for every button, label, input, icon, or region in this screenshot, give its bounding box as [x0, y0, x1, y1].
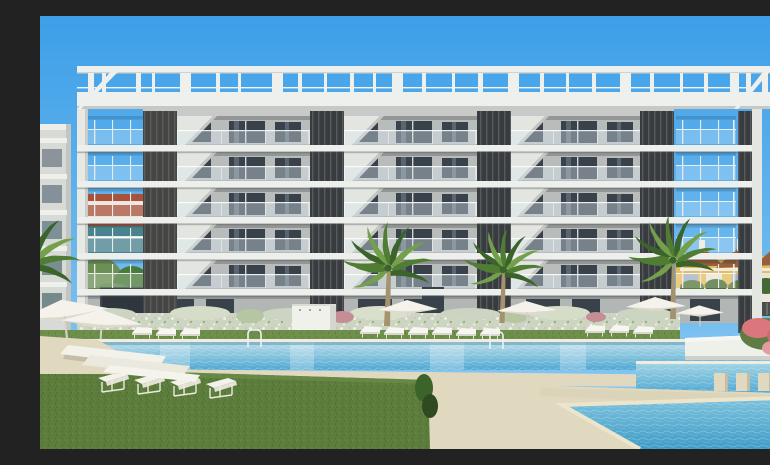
open-balcony-left [88, 116, 148, 288]
dark-bush [422, 394, 438, 418]
main-building [77, 66, 770, 338]
lawn [40, 368, 438, 449]
property-render-photo [40, 16, 770, 449]
rooftop-pergola [77, 66, 770, 109]
stepping-stones [714, 373, 770, 391]
